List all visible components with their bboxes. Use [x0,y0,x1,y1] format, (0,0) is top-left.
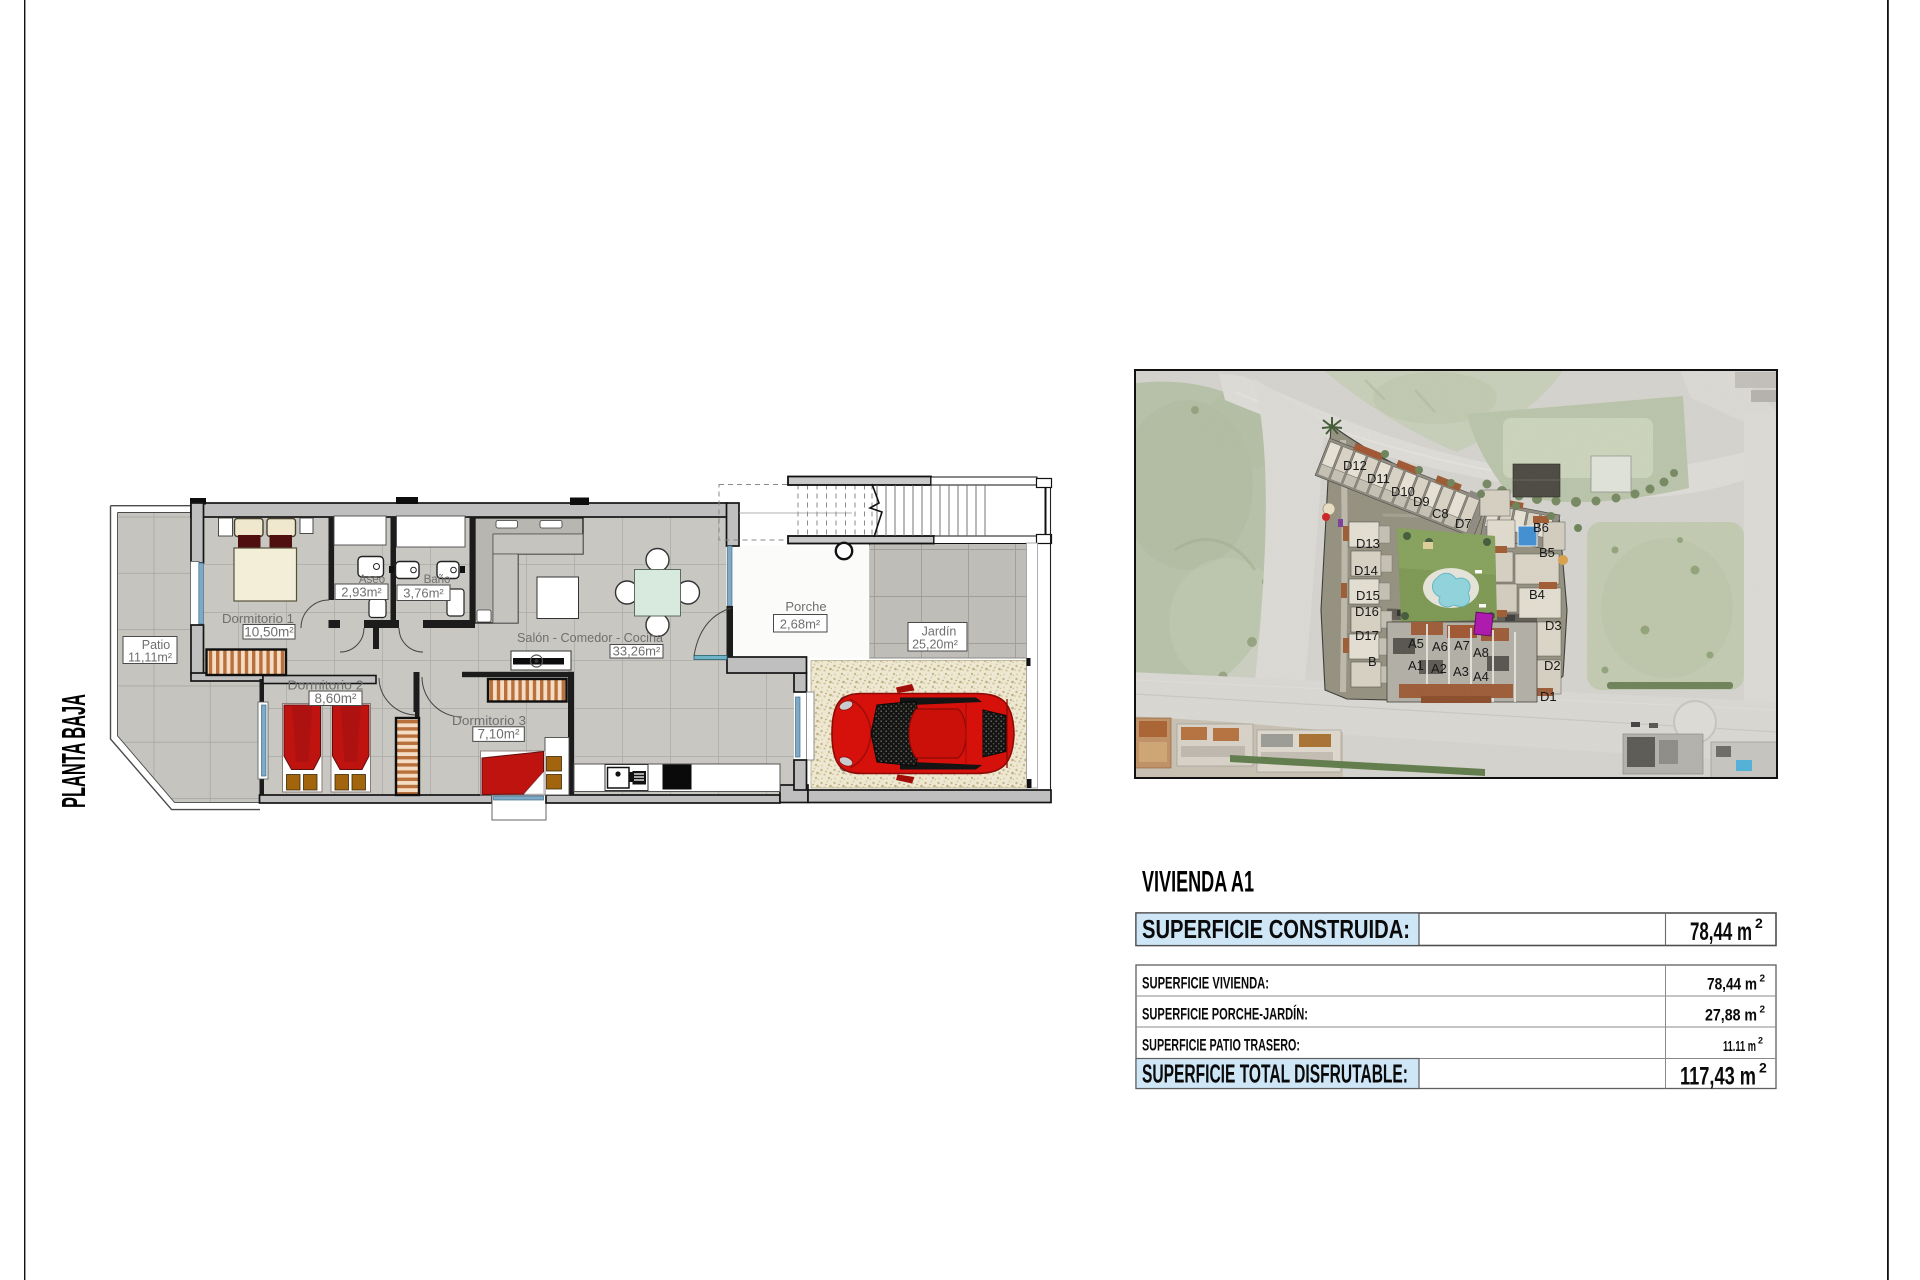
svg-text:SUPERFICIE CONSTRUIDA:: SUPERFICIE CONSTRUIDA: [1142,914,1410,944]
svg-text:11.11 m: 11.11 m [1723,1038,1756,1055]
svg-text:3,76m²: 3,76m² [403,586,444,601]
svg-text:2: 2 [1759,1060,1767,1076]
svg-text:Baño: Baño [424,574,451,586]
svg-text:2,68m²: 2,68m² [780,617,821,632]
svg-text:PLANTA BAJA: PLANTA BAJA [55,694,92,808]
svg-text:SUPERFICIE PATIO TRASERO:: SUPERFICIE PATIO TRASERO: [1142,1036,1300,1055]
svg-text:2: 2 [1760,1005,1766,1016]
svg-text:2: 2 [1760,974,1766,985]
svg-text:25,20m²: 25,20m² [912,638,958,652]
svg-text:10,50m²: 10,50m² [244,625,294,640]
svg-text:2: 2 [1758,1036,1763,1046]
svg-text:78,44 m: 78,44 m [1707,975,1757,994]
svg-text:Porche: Porche [785,599,826,614]
svg-text:8,60m²: 8,60m² [314,691,357,706]
svg-text:VIVIENDA A1: VIVIENDA A1 [1142,866,1254,899]
svg-text:33,26m²: 33,26m² [613,644,661,659]
svg-text:SUPERFICIE PORCHE-JARDÍN:: SUPERFICIE PORCHE-JARDÍN: [1142,1005,1308,1024]
svg-text:27,88 m: 27,88 m [1705,1006,1757,1025]
svg-text:SUPERFICIE TOTAL DISFRUTABLE:: SUPERFICIE TOTAL DISFRUTABLE: [1142,1059,1408,1089]
svg-text:7,10m²: 7,10m² [477,727,520,742]
svg-text:11,11m²: 11,11m² [128,651,172,665]
svg-text:117,43 m: 117,43 m [1680,1063,1756,1091]
svg-text:78,44 m: 78,44 m [1690,918,1752,946]
svg-text:SUPERFICIE VIVIENDA:: SUPERFICIE VIVIENDA: [1142,974,1269,993]
svg-text:Jardín: Jardín [922,625,957,639]
svg-text:2: 2 [1755,915,1763,931]
svg-text:2,93m²: 2,93m² [341,585,382,600]
